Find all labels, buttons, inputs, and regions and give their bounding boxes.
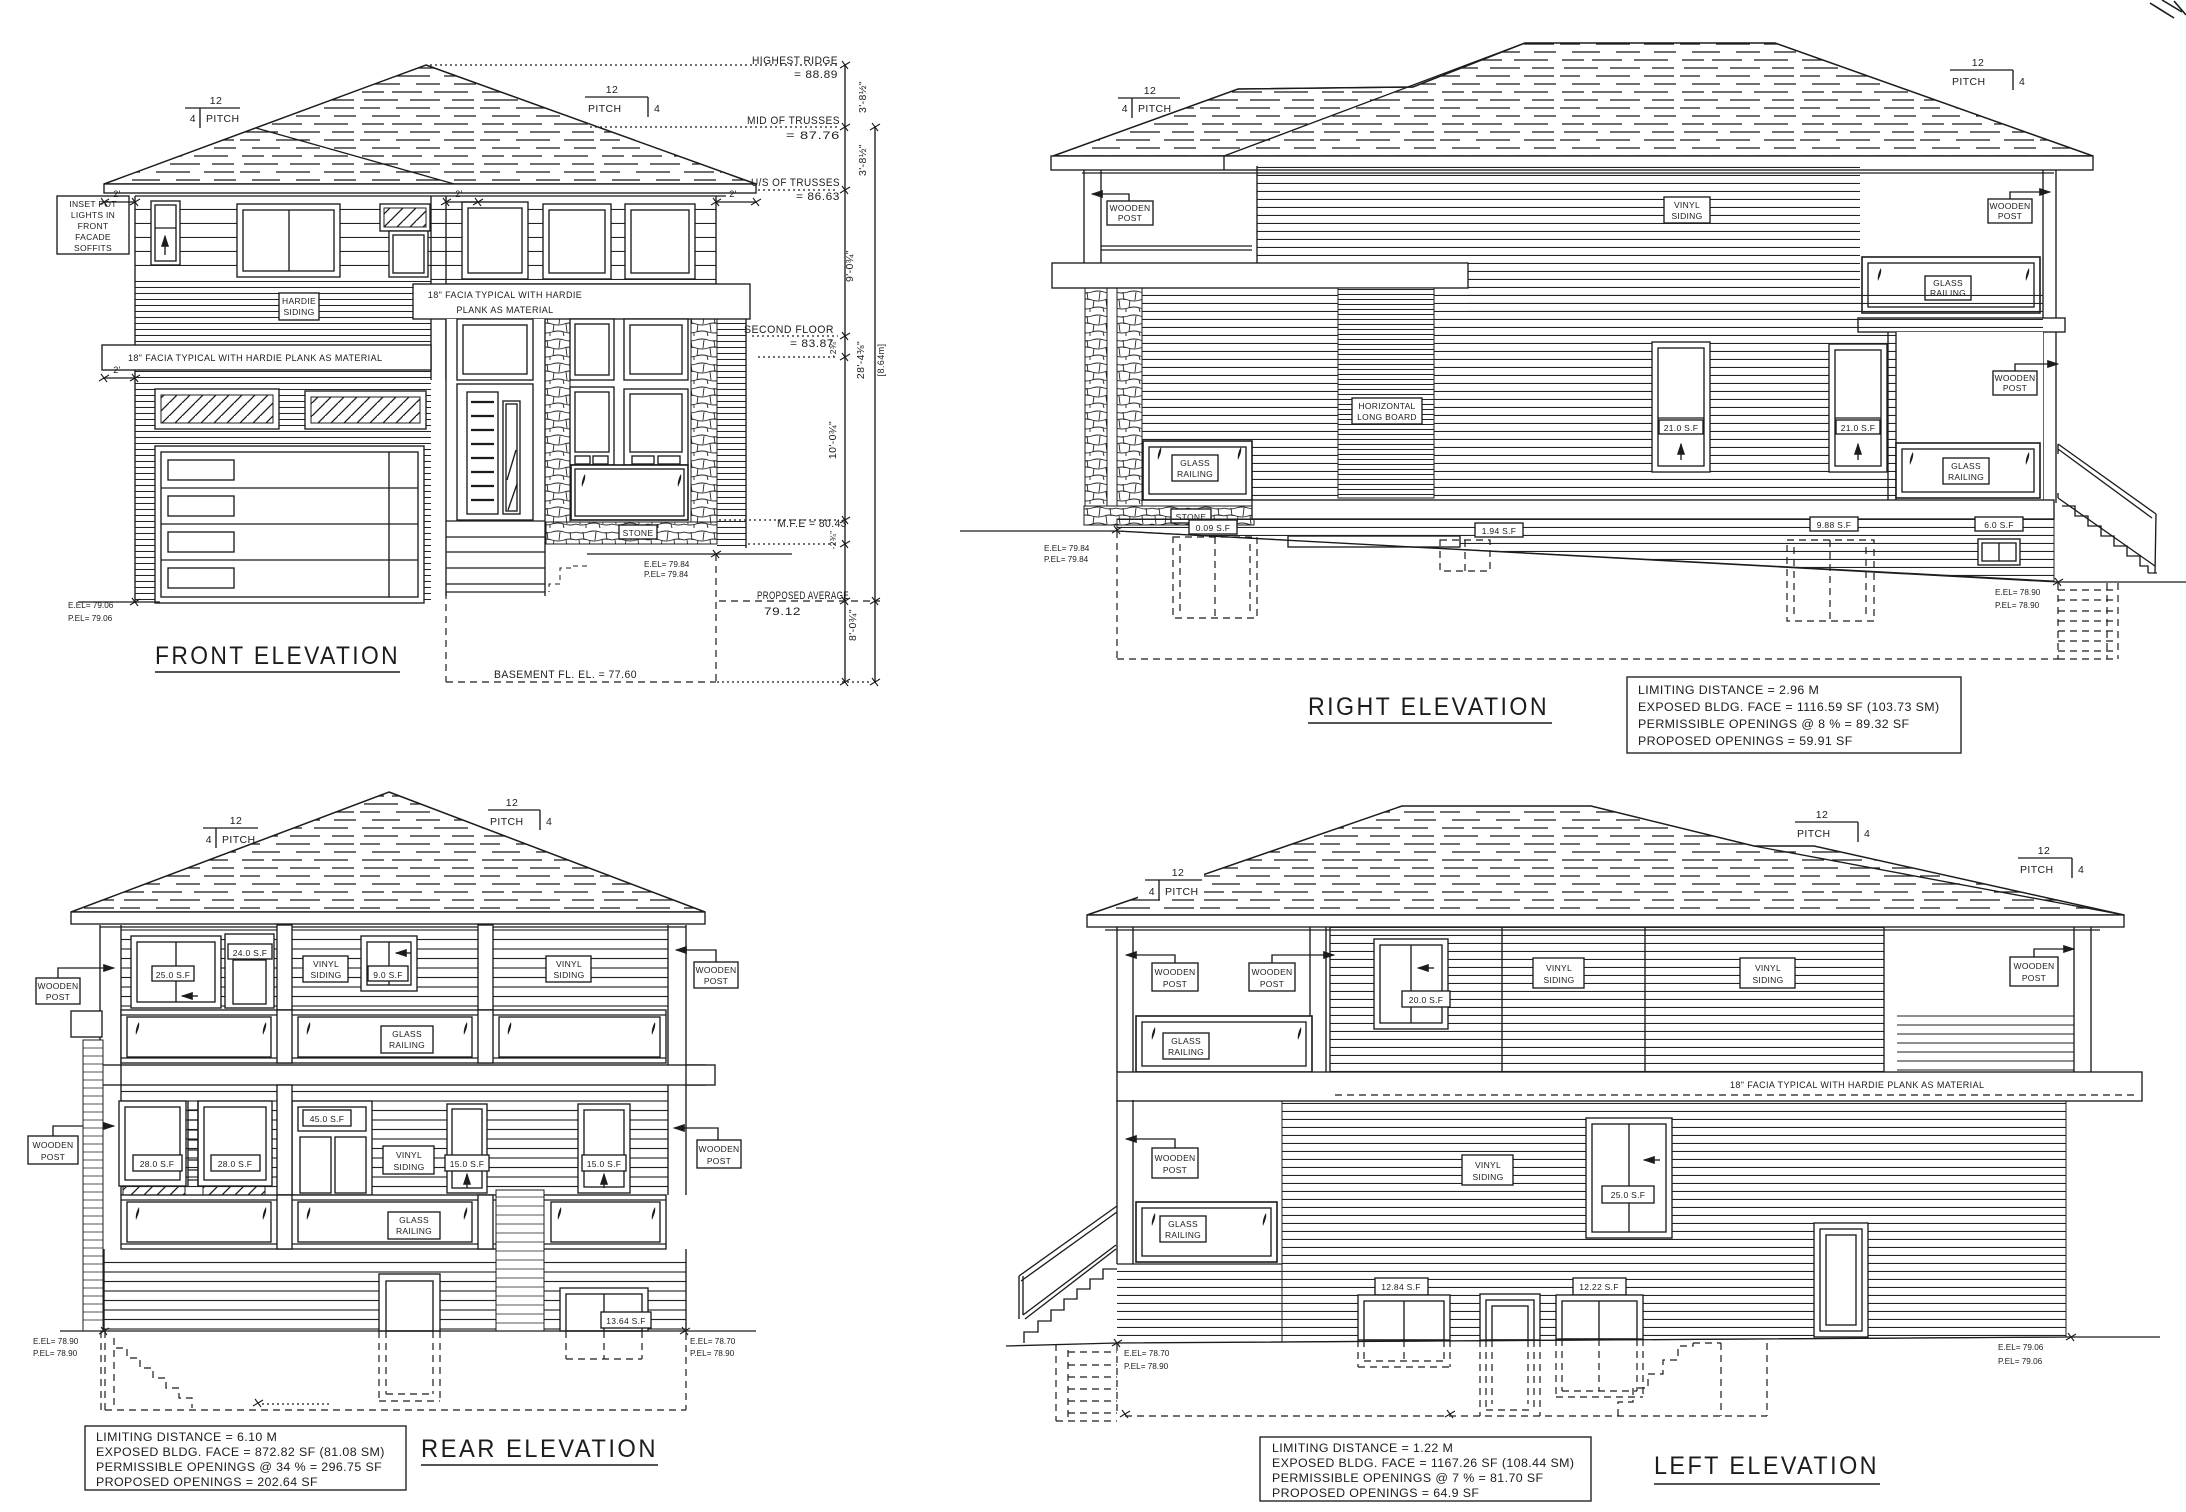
svg-text:E.EL= 78.70: E.EL= 78.70	[1124, 1349, 1170, 1358]
svg-text:45.0 S.F: 45.0 S.F	[310, 1114, 345, 1124]
svg-text:= 88.89: = 88.89	[794, 69, 838, 81]
svg-text:12: 12	[506, 797, 518, 809]
svg-text:12.22 S.F: 12.22 S.F	[1579, 1282, 1619, 1292]
svg-text:12: 12	[1144, 85, 1156, 97]
svg-text:E.EL= 78.90: E.EL= 78.90	[33, 1337, 79, 1346]
svg-text:E.EL= 79.84: E.EL= 79.84	[1044, 544, 1090, 553]
svg-text:HIGHEST RIDGE: HIGHEST RIDGE	[752, 55, 838, 67]
svg-text:PLANK AS MATERIAL: PLANK AS MATERIAL	[456, 305, 553, 315]
svg-text:U/S OF TRUSSES: U/S OF TRUSSES	[751, 177, 840, 189]
svg-text:4: 4	[206, 834, 212, 846]
svg-text:WOODEN: WOODEN	[1155, 1153, 1196, 1163]
svg-text:POST: POST	[1998, 211, 2022, 221]
svg-text:PROPOSED AVERAGE: PROPOSED AVERAGE	[757, 590, 849, 602]
svg-text:12: 12	[1972, 57, 1984, 69]
svg-text:GLASS: GLASS	[1951, 461, 1981, 471]
svg-text:0.09 S.F: 0.09 S.F	[1196, 523, 1231, 533]
svg-text:SIDING: SIDING	[1671, 211, 1702, 221]
svg-text:E.EL= 79.06: E.EL= 79.06	[68, 601, 114, 610]
svg-text:POST: POST	[41, 1152, 65, 1162]
svg-text:RAILING: RAILING	[1948, 472, 1984, 482]
svg-text:GLASS: GLASS	[1933, 278, 1963, 288]
svg-text:INSET POT: INSET POT	[69, 199, 116, 209]
svg-text:12: 12	[606, 84, 618, 96]
svg-text:LONG BOARD: LONG BOARD	[1357, 412, 1417, 422]
svg-text:SOFFITS: SOFFITS	[74, 243, 112, 253]
svg-text:P.EL= 78.90: P.EL= 78.90	[1995, 601, 2040, 610]
svg-text:HORIZONTAL: HORIZONTAL	[1358, 401, 1415, 411]
svg-text:25.0 S.F: 25.0 S.F	[156, 970, 191, 980]
svg-text:M.F.E = 80.43: M.F.E = 80.43	[777, 518, 847, 530]
svg-text:RAILING: RAILING	[389, 1040, 425, 1050]
svg-text:SIDING: SIDING	[283, 307, 314, 317]
svg-text:POST: POST	[46, 992, 70, 1002]
svg-text:POST: POST	[2003, 383, 2027, 393]
svg-text:STONE: STONE	[623, 528, 654, 538]
svg-text:2': 2'	[455, 189, 463, 199]
svg-text:8'-0¾": 8'-0¾"	[847, 609, 859, 641]
svg-text:P.EL= 78.90: P.EL= 78.90	[690, 1349, 735, 1358]
svg-text:RAILING: RAILING	[1165, 1230, 1201, 1240]
svg-text:1.94 S.F: 1.94 S.F	[1482, 526, 1517, 536]
svg-text:P.EL= 78.90: P.EL= 78.90	[1124, 1362, 1169, 1371]
svg-text:E.EL= 79.84: E.EL= 79.84	[644, 560, 690, 569]
svg-text:P.EL= 79.06: P.EL= 79.06	[68, 614, 113, 623]
svg-text:POST: POST	[707, 1156, 731, 1166]
svg-text:PITCH: PITCH	[2020, 864, 2054, 876]
svg-text:18" FACIA TYPICAL WITH HARDIE: 18" FACIA TYPICAL WITH HARDIE PLANK AS M…	[128, 353, 382, 363]
svg-text:21.0 S.F: 21.0 S.F	[1664, 423, 1699, 433]
svg-text:WOODEN: WOODEN	[1995, 373, 2036, 383]
svg-text:VINYL: VINYL	[556, 959, 582, 969]
svg-text:LIGHTS IN: LIGHTS IN	[71, 210, 115, 220]
svg-text:10'-0¾": 10'-0¾"	[827, 421, 839, 459]
svg-text:P.EL= 78.90: P.EL= 78.90	[33, 1349, 78, 1358]
svg-text:PROPOSED OPENINGS = 64.9 SF: PROPOSED OPENINGS = 64.9 SF	[1272, 1486, 1479, 1500]
svg-text:SECOND FLOOR: SECOND FLOOR	[744, 324, 834, 336]
svg-text:BASEMENT FL. EL. = 77.60: BASEMENT FL. EL. = 77.60	[494, 669, 637, 681]
svg-text:PERMISSIBLE OPENINGS @ 8 % = 8: PERMISSIBLE OPENINGS @ 8 % = 89.32 SF	[1638, 717, 1910, 731]
svg-text:WOODEN: WOODEN	[696, 965, 737, 975]
svg-text:REAR ELEVATION: REAR ELEVATION	[421, 1435, 658, 1463]
svg-text:FRONT: FRONT	[78, 221, 109, 231]
svg-text:VINYL: VINYL	[396, 1150, 422, 1160]
svg-text:-2¾": -2¾"	[828, 531, 838, 550]
svg-text:POST: POST	[2022, 973, 2046, 983]
svg-text:PITCH: PITCH	[1165, 886, 1199, 898]
svg-text:12: 12	[1172, 867, 1184, 879]
svg-text:21.0 S.F: 21.0 S.F	[1841, 423, 1876, 433]
svg-text:HARDIE: HARDIE	[282, 296, 316, 306]
svg-text:PITCH: PITCH	[1138, 103, 1172, 115]
svg-text:SIDING: SIDING	[393, 1162, 424, 1172]
svg-text:4: 4	[190, 113, 196, 125]
svg-text:12: 12	[230, 815, 242, 827]
svg-text:79.12: 79.12	[764, 606, 801, 618]
svg-text:VINYL: VINYL	[313, 959, 339, 969]
svg-text:PERMISSIBLE OPENINGS @ 34 % =: PERMISSIBLE OPENINGS @ 34 % = 296.75 SF	[96, 1460, 382, 1474]
svg-text:PROPOSED OPENINGS = 202.64 SF: PROPOSED OPENINGS = 202.64 SF	[96, 1475, 318, 1489]
svg-text:EXPOSED BLDG. FACE = 1167.26 S: EXPOSED BLDG. FACE = 1167.26 SF (108.44 …	[1272, 1456, 1574, 1470]
svg-text:VINYL: VINYL	[1546, 963, 1572, 973]
svg-text:LIMITING DISTANCE = 2.96 M: LIMITING DISTANCE = 2.96 M	[1638, 683, 1819, 697]
svg-text:12: 12	[210, 95, 222, 107]
svg-text:9.0 S.F: 9.0 S.F	[373, 970, 403, 980]
svg-text:15.0 S.F: 15.0 S.F	[587, 1159, 622, 1169]
svg-text:RAILING: RAILING	[396, 1226, 432, 1236]
svg-text:9.88 S.F: 9.88 S.F	[1817, 520, 1852, 530]
svg-text:15.0 S.F: 15.0 S.F	[450, 1159, 485, 1169]
svg-text:VINYL: VINYL	[1755, 963, 1781, 973]
svg-text:PERMISSIBLE OPENINGS @ 7 % = 8: PERMISSIBLE OPENINGS @ 7 % = 81.70 SF	[1272, 1471, 1544, 1485]
svg-text:4: 4	[546, 816, 552, 828]
svg-text:PITCH: PITCH	[206, 113, 240, 125]
svg-text:GLASS: GLASS	[399, 1215, 429, 1225]
svg-text:GLASS: GLASS	[1168, 1219, 1198, 1229]
svg-text:FACADE: FACADE	[75, 232, 111, 242]
svg-text:4: 4	[1864, 828, 1870, 840]
svg-text:4: 4	[2078, 864, 2084, 876]
svg-text:P.EL= 79.06: P.EL= 79.06	[1998, 1357, 2043, 1366]
svg-text:E.EL= 79.06: E.EL= 79.06	[1998, 1343, 2044, 1352]
svg-text:WOODEN: WOODEN	[2014, 961, 2055, 971]
svg-text:-2¾": -2¾"	[828, 339, 838, 358]
svg-text:RAILING: RAILING	[1177, 469, 1213, 479]
svg-text:9'-0¾": 9'-0¾"	[844, 250, 856, 282]
svg-text:20.0 S.F: 20.0 S.F	[1409, 995, 1444, 1005]
svg-text:WOODEN: WOODEN	[699, 1144, 740, 1154]
svg-text:RIGHT ELEVATION: RIGHT ELEVATION	[1308, 693, 1549, 721]
svg-text:SIDING: SIDING	[1543, 975, 1574, 985]
svg-text:VINYL: VINYL	[1475, 1160, 1501, 1170]
svg-text:POST: POST	[1118, 213, 1142, 223]
svg-text:SIDING: SIDING	[553, 970, 584, 980]
svg-text:POST: POST	[1163, 979, 1187, 989]
svg-text:28.0 S.F: 28.0 S.F	[140, 1159, 175, 1169]
svg-text:LEFT ELEVATION: LEFT ELEVATION	[1654, 1452, 1879, 1480]
svg-text:6.0 S.F: 6.0 S.F	[1984, 520, 2014, 530]
svg-text:SIDING: SIDING	[1752, 975, 1783, 985]
svg-text:VINYL: VINYL	[1674, 200, 1700, 210]
svg-text:= 86.63: = 86.63	[796, 191, 840, 203]
svg-text:24.0 S.F: 24.0 S.F	[233, 948, 268, 958]
svg-text:P.EL= 79.84: P.EL= 79.84	[1044, 555, 1089, 564]
svg-text:18" FACIA TYPICAL WITH HARDIE: 18" FACIA TYPICAL WITH HARDIE PLANK AS M…	[1730, 1080, 1984, 1090]
svg-text:= 87.76: = 87.76	[786, 130, 840, 142]
svg-text:PITCH: PITCH	[490, 816, 524, 828]
svg-text:28.0 S.F: 28.0 S.F	[218, 1159, 253, 1169]
svg-text:WOODEN: WOODEN	[38, 981, 79, 991]
svg-text:12: 12	[1816, 809, 1828, 821]
svg-text:3'-8½": 3'-8½"	[857, 81, 869, 113]
svg-text:EXPOSED BLDG. FACE = 1116.59 S: EXPOSED BLDG. FACE = 1116.59 SF (103.73 …	[1638, 700, 1940, 714]
svg-text:28'-4⅜": 28'-4⅜"	[855, 341, 867, 379]
svg-text:RAILING: RAILING	[1168, 1047, 1204, 1057]
svg-text:WOODEN: WOODEN	[1252, 967, 1293, 977]
svg-text:POST: POST	[704, 976, 728, 986]
svg-text:PITCH: PITCH	[222, 834, 256, 846]
svg-text:SIDING: SIDING	[310, 970, 341, 980]
svg-text:2': 2'	[729, 189, 737, 199]
svg-text:4: 4	[654, 103, 660, 115]
svg-text:E.EL= 78.70: E.EL= 78.70	[690, 1337, 736, 1346]
svg-text:2': 2'	[113, 365, 121, 375]
svg-text:LIMITING DISTANCE = 6.10 M: LIMITING DISTANCE = 6.10 M	[96, 1430, 277, 1444]
svg-text:WOODEN: WOODEN	[1155, 967, 1196, 977]
svg-text:PITCH: PITCH	[1952, 76, 1986, 88]
svg-text:P.EL= 79.84: P.EL= 79.84	[644, 570, 689, 579]
svg-text:GLASS: GLASS	[1171, 1036, 1201, 1046]
svg-text:[8.64m]: [8.64m]	[876, 344, 886, 377]
svg-text:FRONT ELEVATION: FRONT ELEVATION	[155, 642, 400, 670]
svg-text:EXPOSED BLDG. FACE = 872.82 SF: EXPOSED BLDG. FACE = 872.82 SF (81.08 SM…	[96, 1445, 385, 1459]
svg-text:PITCH: PITCH	[1797, 828, 1831, 840]
svg-text:SIDING: SIDING	[1472, 1172, 1503, 1182]
svg-text:25.0 S.F: 25.0 S.F	[1611, 1190, 1646, 1200]
svg-text:WOODEN: WOODEN	[33, 1140, 74, 1150]
svg-text:12.84 S.F: 12.84 S.F	[1381, 1282, 1421, 1292]
svg-text:4: 4	[1122, 103, 1128, 115]
svg-text:MID OF TRUSSES: MID OF TRUSSES	[747, 115, 840, 127]
svg-text:12: 12	[2038, 845, 2050, 857]
svg-text:GLASS: GLASS	[392, 1029, 422, 1039]
svg-text:LIMITING DISTANCE = 1.22 M: LIMITING DISTANCE = 1.22 M	[1272, 1441, 1453, 1455]
svg-text:WOODEN: WOODEN	[1110, 203, 1151, 213]
svg-text:GLASS: GLASS	[1180, 458, 1210, 468]
svg-text:18" FACIA TYPICAL WITH HARDIE: 18" FACIA TYPICAL WITH HARDIE	[428, 290, 582, 300]
svg-text:WOODEN: WOODEN	[1990, 201, 2031, 211]
svg-text:POST: POST	[1260, 979, 1284, 989]
svg-text:3'-8½": 3'-8½"	[857, 144, 869, 176]
svg-text:PITCH: PITCH	[588, 103, 622, 115]
svg-text:4: 4	[2019, 76, 2025, 88]
svg-text:E.EL= 78.90: E.EL= 78.90	[1995, 588, 2041, 597]
svg-text:4: 4	[1149, 886, 1155, 898]
svg-text:POST: POST	[1163, 1165, 1187, 1175]
svg-text:PROPOSED OPENINGS = 59.91 SF: PROPOSED OPENINGS = 59.91 SF	[1638, 734, 1853, 748]
svg-text:13.64 S.F: 13.64 S.F	[606, 1316, 646, 1326]
svg-text:2': 2'	[113, 189, 121, 199]
